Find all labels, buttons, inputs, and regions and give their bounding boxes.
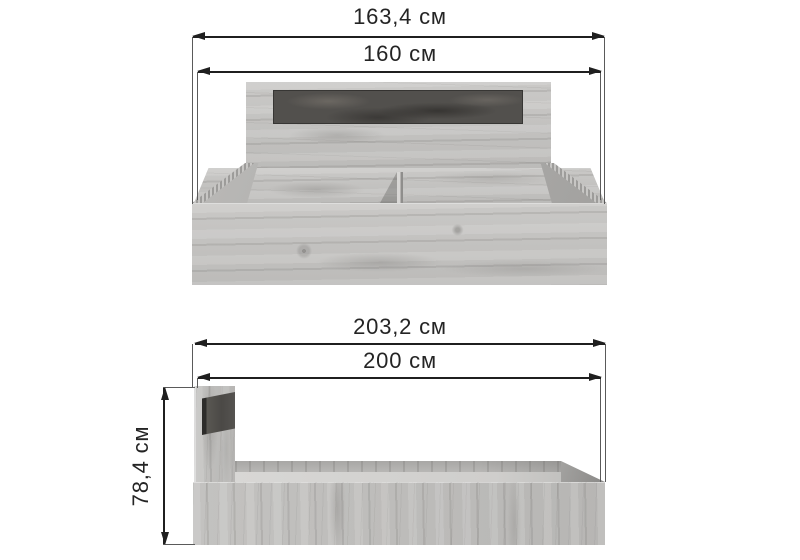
outer-width-dimension-line — [193, 36, 604, 38]
inner-length-dimension-line — [198, 377, 601, 379]
extension-line-inner-left — [197, 72, 198, 200]
arrow-down-icon — [161, 532, 169, 545]
arrow-left-icon — [197, 373, 210, 381]
center-divider — [397, 172, 403, 203]
arrow-left-icon — [194, 339, 207, 347]
inner-length-label: 200 см — [363, 349, 437, 373]
side-panel — [193, 482, 605, 545]
extension-line-outer-right — [604, 37, 605, 204]
footboard-corner — [561, 461, 605, 482]
outer-width-label: 163,4 см — [353, 5, 447, 29]
post-accent-panel — [202, 392, 235, 435]
extension-line-length-left — [192, 344, 193, 387]
extension-line-length-right — [605, 344, 606, 482]
arrow-up-icon — [161, 387, 169, 400]
outer-length-dimension-line — [195, 343, 605, 345]
height-dimension-line — [163, 388, 165, 544]
rail-top-edge — [235, 461, 561, 472]
bed-frame-interior — [192, 163, 607, 203]
arrow-left-icon — [192, 32, 205, 40]
arrow-right-icon — [589, 67, 602, 75]
extension-line-outer-left — [192, 37, 193, 204]
height-label: 78,4 см — [129, 426, 153, 507]
outer-length-label: 203,2 см — [353, 315, 447, 339]
platform-edge-highlight — [235, 472, 561, 482]
extension-line-inner-right — [600, 72, 601, 200]
inner-width-dimension-line — [198, 71, 601, 73]
extension-line-inner-length-right — [600, 378, 601, 482]
headboard-accent-panel — [273, 90, 523, 124]
arrow-right-icon — [589, 373, 602, 381]
arrow-left-icon — [197, 67, 210, 75]
inner-width-label: 160 см — [363, 42, 437, 66]
bed-dimensions-diagram: 163,4 см 160 см 203,2 с — [0, 0, 800, 560]
arrow-right-icon — [593, 339, 606, 347]
front-panel — [192, 203, 607, 285]
arrow-right-icon — [592, 32, 605, 40]
